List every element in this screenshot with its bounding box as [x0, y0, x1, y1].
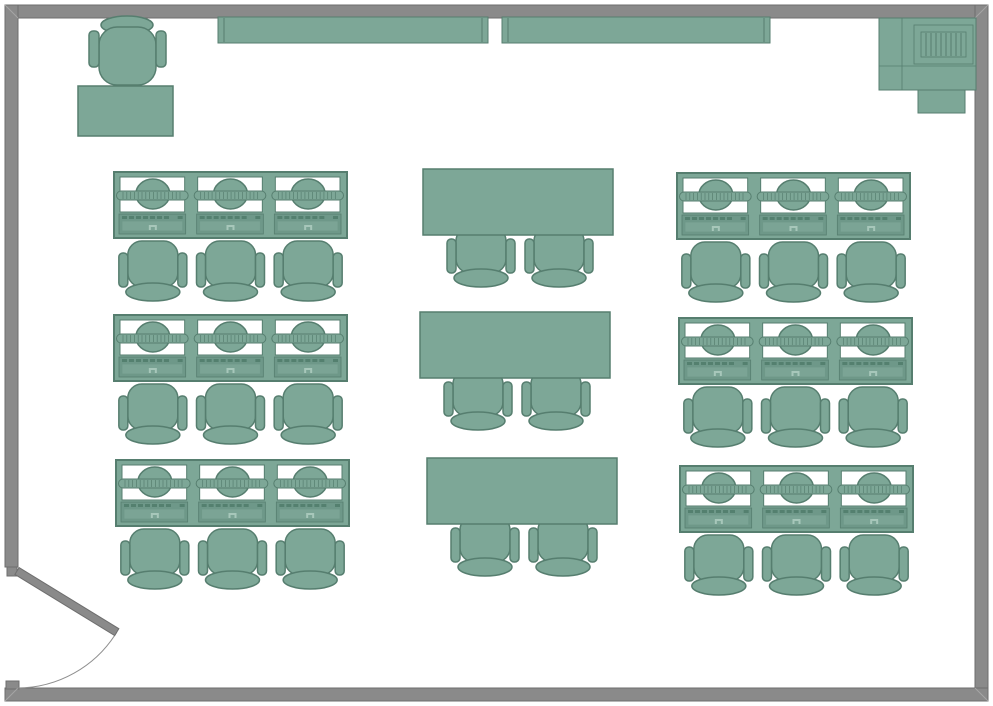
student-chair [197, 241, 265, 301]
chair-seat [285, 529, 335, 575]
chair-armrest [333, 396, 342, 430]
chair-backrest [692, 577, 746, 595]
monitor-stand-bar [757, 192, 829, 201]
chair-backrest [204, 426, 258, 444]
chair-armrest [821, 399, 830, 433]
chair-backrest [126, 426, 180, 444]
chair-armrest [762, 399, 771, 433]
whiteboard [218, 17, 488, 43]
student-chair [763, 535, 831, 595]
chair-seat [693, 387, 743, 433]
computer-desk-row [679, 318, 912, 447]
chair-seat [130, 529, 180, 575]
chair-backrest [283, 571, 337, 589]
computer-workstation [274, 465, 346, 522]
keyboard-icon [762, 360, 829, 380]
chair-seat [769, 242, 819, 288]
student-chair [840, 535, 908, 595]
computer-workstation [680, 178, 752, 235]
wall-right [975, 5, 988, 701]
work-table-group [427, 458, 617, 576]
keyboard-icon [197, 214, 264, 234]
chair-armrest [121, 541, 130, 575]
chair-seat [694, 535, 744, 581]
chair-armrest [743, 399, 752, 433]
floor-plan-canvas [0, 0, 993, 706]
chair-backrest [767, 284, 821, 302]
keyboard-icon [840, 508, 907, 528]
computer-workstation [683, 471, 755, 528]
chair-armrest [180, 541, 189, 575]
student-chair [762, 387, 830, 447]
monitor-stand-bar [196, 479, 268, 488]
door [15, 568, 119, 688]
computer-workstation [196, 465, 268, 522]
keyboard-icon [121, 502, 188, 522]
chair-armrest [451, 528, 460, 562]
student-chair [447, 227, 515, 287]
keyboard-icon [685, 508, 752, 528]
chair-armrest [447, 239, 456, 273]
chair-backrest [691, 429, 745, 447]
student-chair [444, 370, 512, 430]
work-table [423, 169, 613, 235]
chair-backrest [126, 283, 180, 301]
keyboard-icon [119, 214, 186, 234]
student-chair [760, 242, 828, 302]
chair-backrest [281, 426, 335, 444]
chair-backrest [846, 429, 900, 447]
monitor-stand-bar [835, 192, 907, 201]
chair-seat [771, 387, 821, 433]
chair-armrest [503, 382, 512, 416]
chair-armrest [741, 254, 750, 288]
keyboard-icon [684, 360, 751, 380]
monitor-stand-bar [119, 479, 191, 488]
work-table-group [423, 169, 613, 287]
chair-backrest [128, 571, 182, 589]
computer-desk-row [114, 172, 347, 301]
door-leaf [15, 568, 119, 636]
monitor-stand-bar [194, 334, 266, 343]
computer-workstation [272, 320, 344, 377]
chair-armrest [510, 528, 519, 562]
chair-armrest [840, 547, 849, 581]
student-chair [522, 370, 590, 430]
chair-armrest [156, 31, 166, 67]
monitor-stand-bar [760, 485, 832, 494]
monitor-stand-bar [837, 337, 909, 346]
chair-seat [772, 535, 822, 581]
chair-seat [128, 384, 178, 430]
computer-workstation [757, 178, 829, 235]
student-chair [274, 384, 342, 444]
monitor-stand-bar [759, 337, 831, 346]
chair-armrest [274, 396, 283, 430]
chair-backrest [532, 269, 586, 287]
computer-workstation [117, 320, 189, 377]
student-chair [682, 242, 750, 302]
student-chair [684, 387, 752, 447]
chair-armrest [199, 541, 208, 575]
keyboard-icon [763, 508, 830, 528]
keyboard-icon [837, 215, 904, 235]
chair-armrest [819, 254, 828, 288]
monitor-stand-bar [272, 334, 344, 343]
chair-seat [848, 387, 898, 433]
chair-armrest [839, 399, 848, 433]
monitor-stand-bar [682, 337, 754, 346]
keyboard-icon [274, 357, 341, 377]
chair-backrest [204, 283, 258, 301]
printer [879, 18, 976, 113]
keyboard-icon [276, 502, 343, 522]
monitor-stand-bar [838, 485, 910, 494]
chair-backrest [770, 577, 824, 595]
work-table [427, 458, 617, 524]
computer-workstation [837, 323, 909, 380]
teacher-chair [89, 16, 166, 85]
student-chair [529, 516, 597, 576]
keyboard-icon [119, 357, 186, 377]
chair-armrest [588, 528, 597, 562]
floor-plan-svg [0, 0, 993, 706]
chair-armrest [256, 396, 265, 430]
teacher-station [78, 16, 173, 136]
chair-armrest [444, 382, 453, 416]
chair-armrest [256, 253, 265, 287]
monitor-stand-bar [274, 479, 346, 488]
chair-armrest [335, 541, 344, 575]
keyboard-icon [197, 357, 264, 377]
student-chair [119, 384, 187, 444]
keyboard-icon [274, 214, 341, 234]
chair-backrest [844, 284, 898, 302]
chair-seat [208, 529, 258, 575]
wall-top [5, 5, 988, 18]
computer-desk-row [116, 460, 349, 589]
teacher-desk [78, 86, 173, 136]
student-chair [525, 227, 593, 287]
chair-armrest [258, 541, 267, 575]
chair-seat [849, 535, 899, 581]
keyboard-icon [199, 502, 266, 522]
computer-desk-row [680, 466, 913, 595]
chair-armrest [197, 253, 206, 287]
computer-workstation [194, 320, 266, 377]
student-chair [685, 535, 753, 595]
chair-armrest [682, 254, 691, 288]
monitor-stand-bar [272, 191, 344, 200]
computer-workstation [272, 177, 344, 234]
student-chair [451, 516, 519, 576]
chair-armrest [581, 382, 590, 416]
computer-desk-row [677, 173, 910, 302]
computer-workstation [759, 323, 831, 380]
chair-armrest [89, 31, 99, 67]
work-table [420, 312, 610, 378]
student-chair [121, 529, 189, 589]
computer-workstation [117, 177, 189, 234]
chair-armrest [276, 541, 285, 575]
computer-workstation [194, 177, 266, 234]
computer-desk-row [114, 315, 347, 444]
chair-seat [846, 242, 896, 288]
chair-backrest [458, 558, 512, 576]
wall-left [5, 5, 18, 567]
chair-armrest [274, 253, 283, 287]
computer-workstation [835, 178, 907, 235]
chair-armrest [898, 399, 907, 433]
wall-bottom [5, 688, 988, 701]
chair-armrest [896, 254, 905, 288]
chair-backrest [451, 412, 505, 430]
monitor-stand-bar [117, 191, 189, 200]
whiteboard [502, 17, 770, 43]
chair-backrest [847, 577, 901, 595]
chair-seat [128, 241, 178, 287]
keyboard-icon [682, 215, 749, 235]
chair-seat [206, 384, 256, 430]
chair-seat [691, 242, 741, 288]
chair-backrest [536, 558, 590, 576]
keyboard-icon [839, 360, 906, 380]
chair-armrest [763, 547, 772, 581]
keyboard-icon [760, 215, 827, 235]
monitor-stand-bar [680, 192, 752, 201]
monitor-stand-bar [194, 191, 266, 200]
chair-armrest [684, 399, 693, 433]
chair-armrest [822, 547, 831, 581]
monitor-stand-bar [117, 334, 189, 343]
student-chair [274, 241, 342, 301]
student-chair [837, 242, 905, 302]
chair-armrest [760, 254, 769, 288]
chair-backrest [769, 429, 823, 447]
chair-armrest [178, 396, 187, 430]
computer-workstation [760, 471, 832, 528]
chair-seat [283, 384, 333, 430]
computer-workstation [838, 471, 910, 528]
monitor-stand-bar [683, 485, 755, 494]
printer-tray [918, 90, 965, 113]
chair-armrest [119, 396, 128, 430]
student-chair [197, 384, 265, 444]
chair-backrest [529, 412, 583, 430]
door-swing-arc [17, 632, 117, 688]
chair-armrest [525, 239, 534, 273]
chair-armrest [584, 239, 593, 273]
chair-armrest [197, 396, 206, 430]
chair-armrest [333, 253, 342, 287]
chair-backrest [281, 283, 335, 301]
chair-armrest [506, 239, 515, 273]
chair-armrest [522, 382, 531, 416]
chair-seat [206, 241, 256, 287]
computer-workstation [119, 465, 191, 522]
student-chair [119, 241, 187, 301]
chair-armrest [529, 528, 538, 562]
chair-armrest [685, 547, 694, 581]
student-chair [839, 387, 907, 447]
student-chair [276, 529, 344, 589]
student-chair [199, 529, 267, 589]
chair-armrest [119, 253, 128, 287]
chair-armrest [899, 547, 908, 581]
chair-seat [99, 27, 156, 85]
computer-workstation [682, 323, 754, 380]
chair-backrest [206, 571, 260, 589]
chair-armrest [837, 254, 846, 288]
work-table-group [420, 312, 610, 430]
chair-armrest [178, 253, 187, 287]
chair-backrest [689, 284, 743, 302]
chair-seat [283, 241, 333, 287]
chair-backrest [454, 269, 508, 287]
chair-armrest [744, 547, 753, 581]
